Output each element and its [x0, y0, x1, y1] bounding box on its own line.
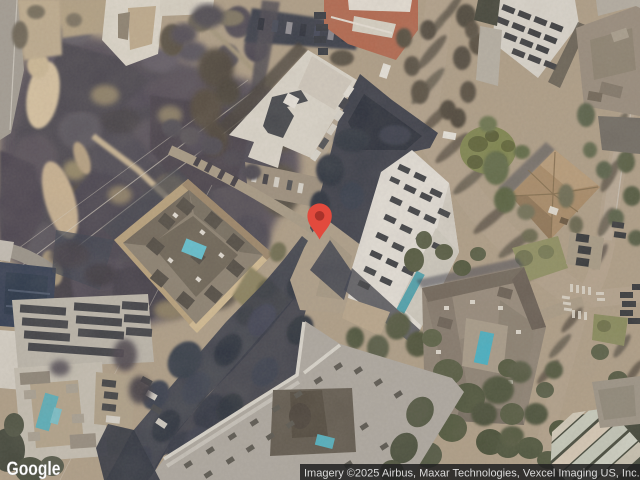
svg-text:Imagery ©2025 Airbus, Maxar Te: Imagery ©2025 Airbus, Maxar Technologies… — [304, 468, 640, 480]
svg-text:Google: Google — [7, 458, 61, 480]
